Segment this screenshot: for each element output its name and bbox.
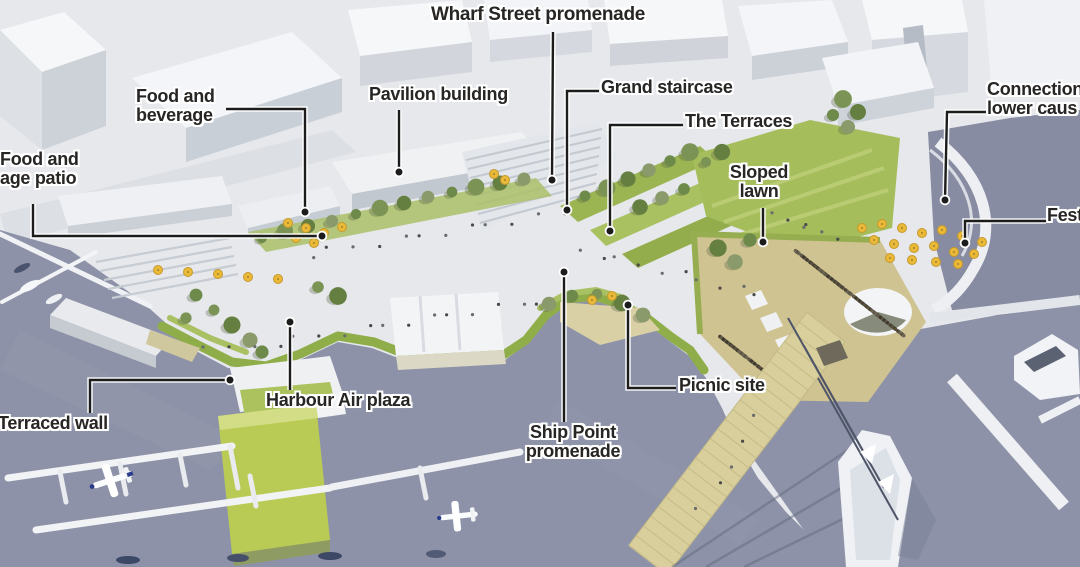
callout-food-and-beverage-line1: Food and (136, 87, 215, 106)
callout-pavilion-building-text: Pavilion building (369, 85, 508, 104)
callout-ship-point-promenade: Ship Point promenade (514, 423, 632, 461)
callout-wharf-street-promenade-text: Wharf Street promenade (420, 5, 656, 25)
callout-sloped-lawn: Sloped lawn (723, 163, 795, 201)
gabled-shed (390, 292, 506, 370)
callout-harbour-air-plaza: Harbour Air plaza (266, 391, 410, 410)
callout-connection-lower-causeway: Connection lower caus (987, 80, 1080, 118)
callout-festival-text: Fest (1047, 206, 1080, 225)
waterfront-plan-figure: { "callouts": { "wharf_street_promenade"… (0, 0, 1080, 567)
callout-grand-staircase: Grand staircase (601, 78, 733, 97)
callout-picnic-site-text: Picnic site (679, 376, 765, 395)
callout-pavilion-building: Pavilion building (369, 85, 508, 104)
callout-the-terraces: The Terraces (685, 112, 792, 131)
callout-sloped-lawn-line1: Sloped (723, 163, 795, 182)
callout-ship-point-line1: Ship Point (514, 423, 632, 442)
callout-ship-point-line2: promenade (514, 442, 632, 461)
callout-wharf-street-promenade: Wharf Street promenade (420, 5, 656, 25)
callout-the-terraces-text: The Terraces (685, 112, 792, 131)
callout-food-and-beverage-line2: beverage (136, 106, 215, 125)
callout-festival: Fest (1047, 206, 1080, 225)
callout-food-patio-line1: Food and (0, 150, 79, 169)
callout-terraced-wall-text: Terraced wall (0, 414, 108, 433)
callout-grand-staircase-text: Grand staircase (601, 78, 733, 97)
callout-food-and-beverage: Food and beverage (136, 87, 215, 125)
callout-terraced-wall: Terraced wall (0, 414, 108, 433)
callout-food-and-beverage-patio: Food and age patio (0, 150, 79, 188)
callout-food-patio-line2: age patio (0, 169, 79, 188)
callout-sloped-lawn-line2: lawn (723, 182, 795, 201)
callout-picnic-site: Picnic site (679, 376, 765, 395)
callout-harbour-air-plaza-text: Harbour Air plaza (266, 391, 410, 410)
callout-connection-line1: Connection (987, 80, 1080, 99)
callout-connection-line2: lower caus (987, 99, 1080, 118)
